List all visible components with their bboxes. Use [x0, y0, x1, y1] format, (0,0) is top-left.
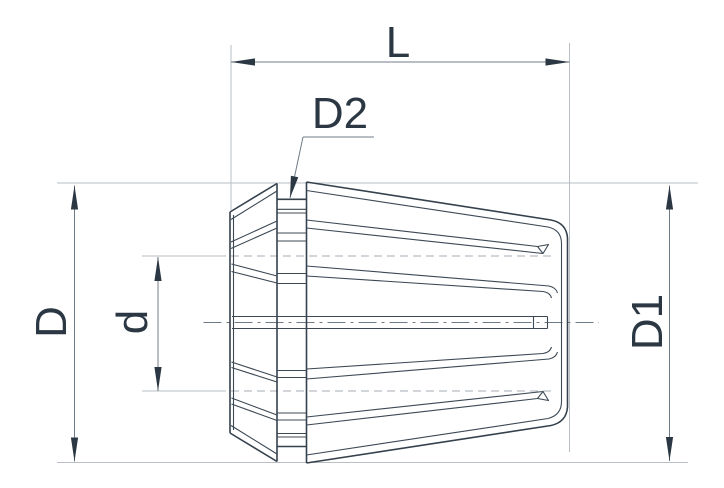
dimension-lines	[75, 62, 670, 462]
body-rear-slot-lower	[307, 347, 558, 379]
nose-bottom-edge	[230, 433, 277, 462]
body-slot-upper-end	[538, 245, 549, 254]
drawing-canvas: L D2 D d D1	[0, 0, 724, 488]
nose-slot-band	[232, 398, 278, 421]
arrowhead-L-left	[231, 58, 255, 65]
body-slot-lower-end	[538, 392, 549, 401]
dimension-labels: L D2 D d D1	[27, 18, 672, 350]
arrowhead-d-top	[154, 257, 161, 281]
arrowhead-D1-bottom	[666, 437, 673, 461]
body-slot-upper	[307, 220, 544, 254]
groove-detail-lines	[277, 209, 307, 437]
nose-chamfer-bottom	[231, 426, 277, 455]
label-back-diameter-D1: D1	[623, 294, 672, 350]
label-length-L: L	[386, 18, 410, 67]
body-slot-lower	[307, 392, 544, 426]
arrowhead-L-right	[546, 58, 570, 65]
label-outer-diameter-D: D	[27, 306, 76, 338]
label-bore-diameter-d: d	[108, 310, 157, 334]
arrowhead-D-bottom	[71, 438, 78, 462]
nose-slot-band	[231, 221, 277, 249]
arrowhead-D2-leader	[290, 176, 298, 198]
nose-chamfer-top	[231, 191, 277, 220]
body-rear-slot-upper	[307, 266, 558, 298]
nose-slot-band	[232, 362, 278, 382]
dimension-arrowheads	[71, 58, 673, 461]
er-collet-technical-drawing: L D2 D d D1	[0, 0, 724, 488]
nose-top-edge	[230, 184, 277, 213]
arrowhead-D-top	[71, 186, 78, 210]
arrowhead-D1-top	[666, 186, 673, 210]
extension-lines	[57, 43, 698, 463]
label-neck-diameter-D2: D2	[312, 89, 368, 138]
nose-slot-band	[232, 264, 278, 283]
arrowhead-d-bottom	[154, 367, 161, 391]
